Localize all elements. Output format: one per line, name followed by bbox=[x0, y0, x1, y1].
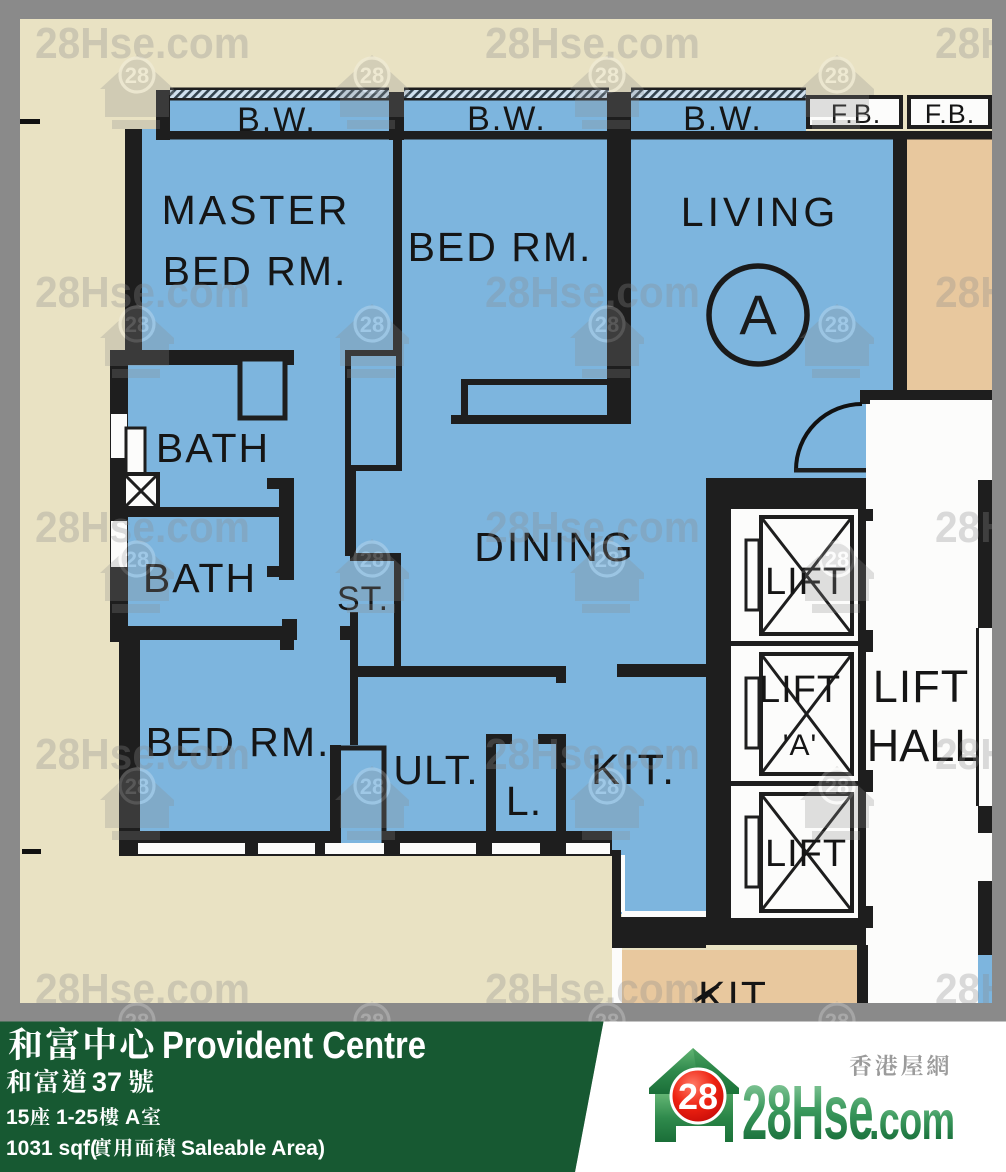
svg-text:1-25: 1-25 bbox=[56, 1106, 98, 1129]
svg-text:LIFT: LIFT bbox=[759, 669, 841, 711]
svg-text:.com: .com bbox=[869, 1090, 954, 1150]
svg-text:'A': 'A' bbox=[783, 729, 817, 762]
svg-text:37: 37 bbox=[92, 1067, 122, 1097]
svg-text:B.W.: B.W. bbox=[467, 100, 547, 138]
svg-text:A: A bbox=[739, 283, 777, 346]
svg-text:BATH: BATH bbox=[156, 425, 270, 471]
svg-text:Saleable Area): Saleable Area) bbox=[181, 1137, 325, 1160]
svg-text:A: A bbox=[125, 1106, 140, 1129]
svg-text:L.: L. bbox=[506, 778, 542, 824]
svg-text:Provident Centre: Provident Centre bbox=[162, 1025, 426, 1067]
svg-text:1031 sqf(: 1031 sqf( bbox=[6, 1137, 97, 1160]
svg-text:28: 28 bbox=[678, 1076, 718, 1117]
svg-text:MASTER: MASTER bbox=[162, 187, 351, 233]
svg-text:B.W.: B.W. bbox=[683, 100, 763, 138]
svg-text:ULT.: ULT. bbox=[393, 747, 478, 793]
svg-text:28Hse: 28Hse bbox=[742, 1071, 873, 1156]
svg-text:15: 15 bbox=[6, 1106, 30, 1129]
svg-text:LIVING: LIVING bbox=[681, 189, 839, 235]
svg-text:B.W.: B.W. bbox=[237, 101, 317, 139]
svg-text:LIFT: LIFT bbox=[873, 661, 970, 712]
svg-text:BED RM.: BED RM. bbox=[408, 224, 593, 270]
svg-text:F.B.: F.B. bbox=[925, 99, 976, 129]
